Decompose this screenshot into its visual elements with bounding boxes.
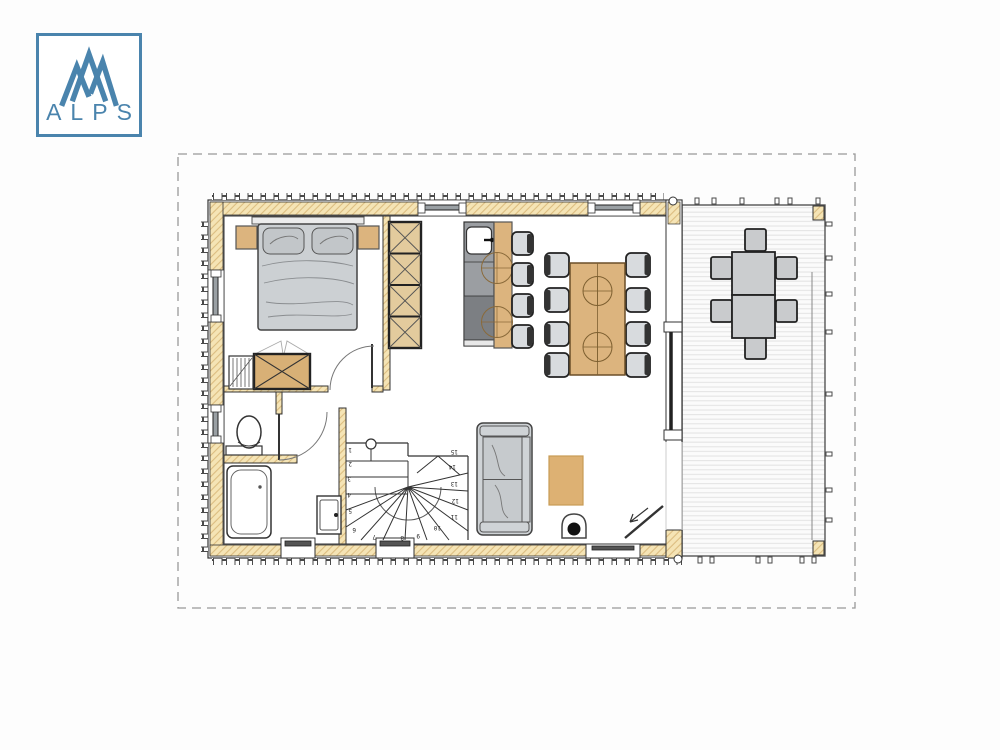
dining-chair xyxy=(545,253,569,277)
stair-post xyxy=(366,439,376,449)
floor-plan: 1 2 3 4 5 6 7 8 9 10 11 12 13 14 15 xyxy=(0,0,1000,750)
dining-chair xyxy=(626,288,650,312)
outdoor-chair xyxy=(711,300,732,322)
outdoor-chair xyxy=(776,257,797,279)
downpipe xyxy=(674,555,682,563)
stove-flue xyxy=(568,523,581,536)
bar-stool xyxy=(512,263,533,286)
wardrobe xyxy=(389,222,421,348)
outdoor-chair xyxy=(711,257,732,279)
dining-chair xyxy=(626,353,650,377)
outdoor-table xyxy=(732,295,775,338)
outdoor-table xyxy=(732,252,775,295)
double-bed xyxy=(258,224,357,330)
stair-step-number: 8 xyxy=(400,534,404,541)
dining-chair xyxy=(545,353,569,377)
dining-chair xyxy=(545,288,569,312)
window-top-2 xyxy=(588,200,640,216)
pillow xyxy=(263,228,304,254)
cabinet-handle xyxy=(334,513,338,517)
bar-stool xyxy=(512,232,533,255)
stair-step-number: 4 xyxy=(347,491,351,498)
cladding-ticks-top xyxy=(212,193,664,200)
stair-step-number: 5 xyxy=(348,507,352,514)
stair-step-number: 7 xyxy=(372,533,376,540)
terrace xyxy=(682,198,832,563)
nightstand-left xyxy=(236,226,257,249)
downpipe xyxy=(669,197,677,205)
partition-bath-stub xyxy=(276,392,282,414)
outdoor-chair xyxy=(745,337,766,359)
stair-step-number: 13 xyxy=(450,480,458,487)
bar-stool xyxy=(512,294,533,317)
pillow xyxy=(312,228,353,254)
outdoor-chair xyxy=(776,300,797,322)
toilet xyxy=(237,416,261,448)
rug xyxy=(549,456,583,505)
dining-chair xyxy=(626,322,650,346)
nightstand-right xyxy=(358,226,379,249)
drain xyxy=(258,485,261,488)
window-left-bedroom xyxy=(208,270,224,322)
page-canvas: { "logo": { "text": "ALPS", "accent_colo… xyxy=(0,0,1000,750)
stair-step-number: 10 xyxy=(433,524,441,531)
bed-headboard xyxy=(252,217,364,224)
cladding-ticks-left xyxy=(201,214,208,552)
stair-step-number: 2 xyxy=(348,460,352,467)
wall-left xyxy=(210,202,223,556)
shelf-unit xyxy=(229,356,253,389)
terrace-post xyxy=(813,206,824,220)
outdoor-chair xyxy=(745,229,766,251)
stair-step-number: 3 xyxy=(347,475,351,482)
window-bottom-1 xyxy=(281,538,315,558)
stair-step-number: 6 xyxy=(352,526,356,533)
utility-cabinet xyxy=(317,496,341,534)
window-bottom-2 xyxy=(376,538,414,558)
bathtub xyxy=(227,466,271,538)
cladding-ticks-bottom xyxy=(212,558,682,565)
partition-stub xyxy=(372,386,383,392)
dining-table xyxy=(570,263,625,375)
dining-chair xyxy=(626,253,650,277)
stair-step-number: 12 xyxy=(451,497,459,504)
sofa xyxy=(477,423,532,535)
stair-step-number: 14 xyxy=(448,463,456,470)
kitchen-counter xyxy=(464,222,494,346)
stair-step-number: 9 xyxy=(416,532,420,539)
dining-chair xyxy=(545,322,569,346)
stair-step-number: 11 xyxy=(450,513,458,520)
partition-toilet-halfwall xyxy=(224,455,297,463)
sofa-backrest xyxy=(522,437,530,522)
stair-step-number: 1 xyxy=(348,446,352,453)
sofa-armrest xyxy=(480,522,529,532)
wood-stove xyxy=(562,514,586,538)
terrace-post xyxy=(813,541,824,555)
window-top-1 xyxy=(418,200,466,216)
stair-step-number: 15 xyxy=(450,448,458,455)
kitchen xyxy=(464,222,533,348)
wall-right-lower xyxy=(666,530,682,558)
bar-stool xyxy=(512,325,533,348)
window-left-bathroom xyxy=(208,405,224,443)
sofa-armrest xyxy=(480,426,529,436)
window-bottom-3 xyxy=(586,544,640,558)
